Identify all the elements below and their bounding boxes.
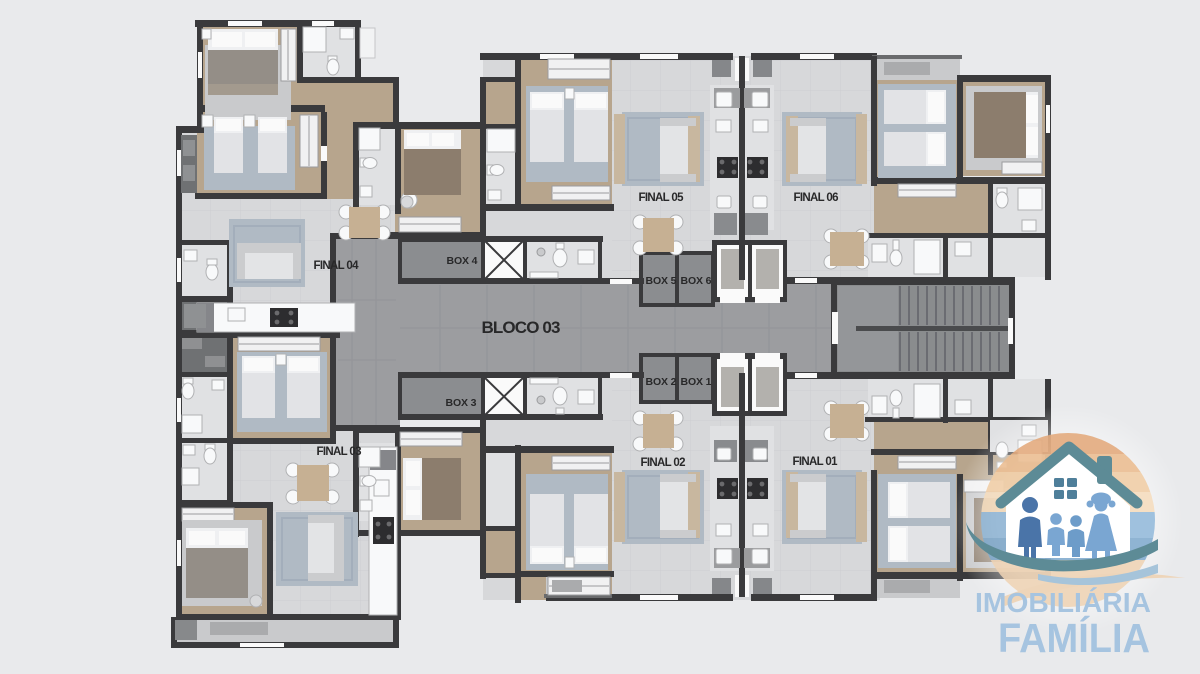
svg-text:FINAL 03: FINAL 03 [317, 446, 362, 458]
svg-text:BOX 4: BOX 4 [447, 255, 478, 267]
svg-text:BOX 3: BOX 3 [446, 397, 477, 409]
svg-text:FINAL 04: FINAL 04 [314, 260, 360, 272]
svg-text:FAMÍLIA: FAMÍLIA [998, 615, 1150, 661]
svg-text:BOX 2: BOX 2 [646, 376, 677, 388]
svg-text:BOX 6: BOX 6 [681, 275, 712, 287]
svg-text:BLOCO 03: BLOCO 03 [482, 318, 561, 337]
svg-text:FINAL 05: FINAL 05 [639, 192, 685, 204]
svg-text:IMOBILIÁRIA: IMOBILIÁRIA [975, 587, 1151, 618]
svg-text:FINAL 02: FINAL 02 [641, 457, 686, 469]
svg-text:BOX 1: BOX 1 [681, 376, 712, 388]
svg-text:FINAL 06: FINAL 06 [794, 192, 839, 204]
svg-text:BOX 5: BOX 5 [646, 275, 677, 287]
svg-text:FINAL 01: FINAL 01 [793, 456, 839, 468]
